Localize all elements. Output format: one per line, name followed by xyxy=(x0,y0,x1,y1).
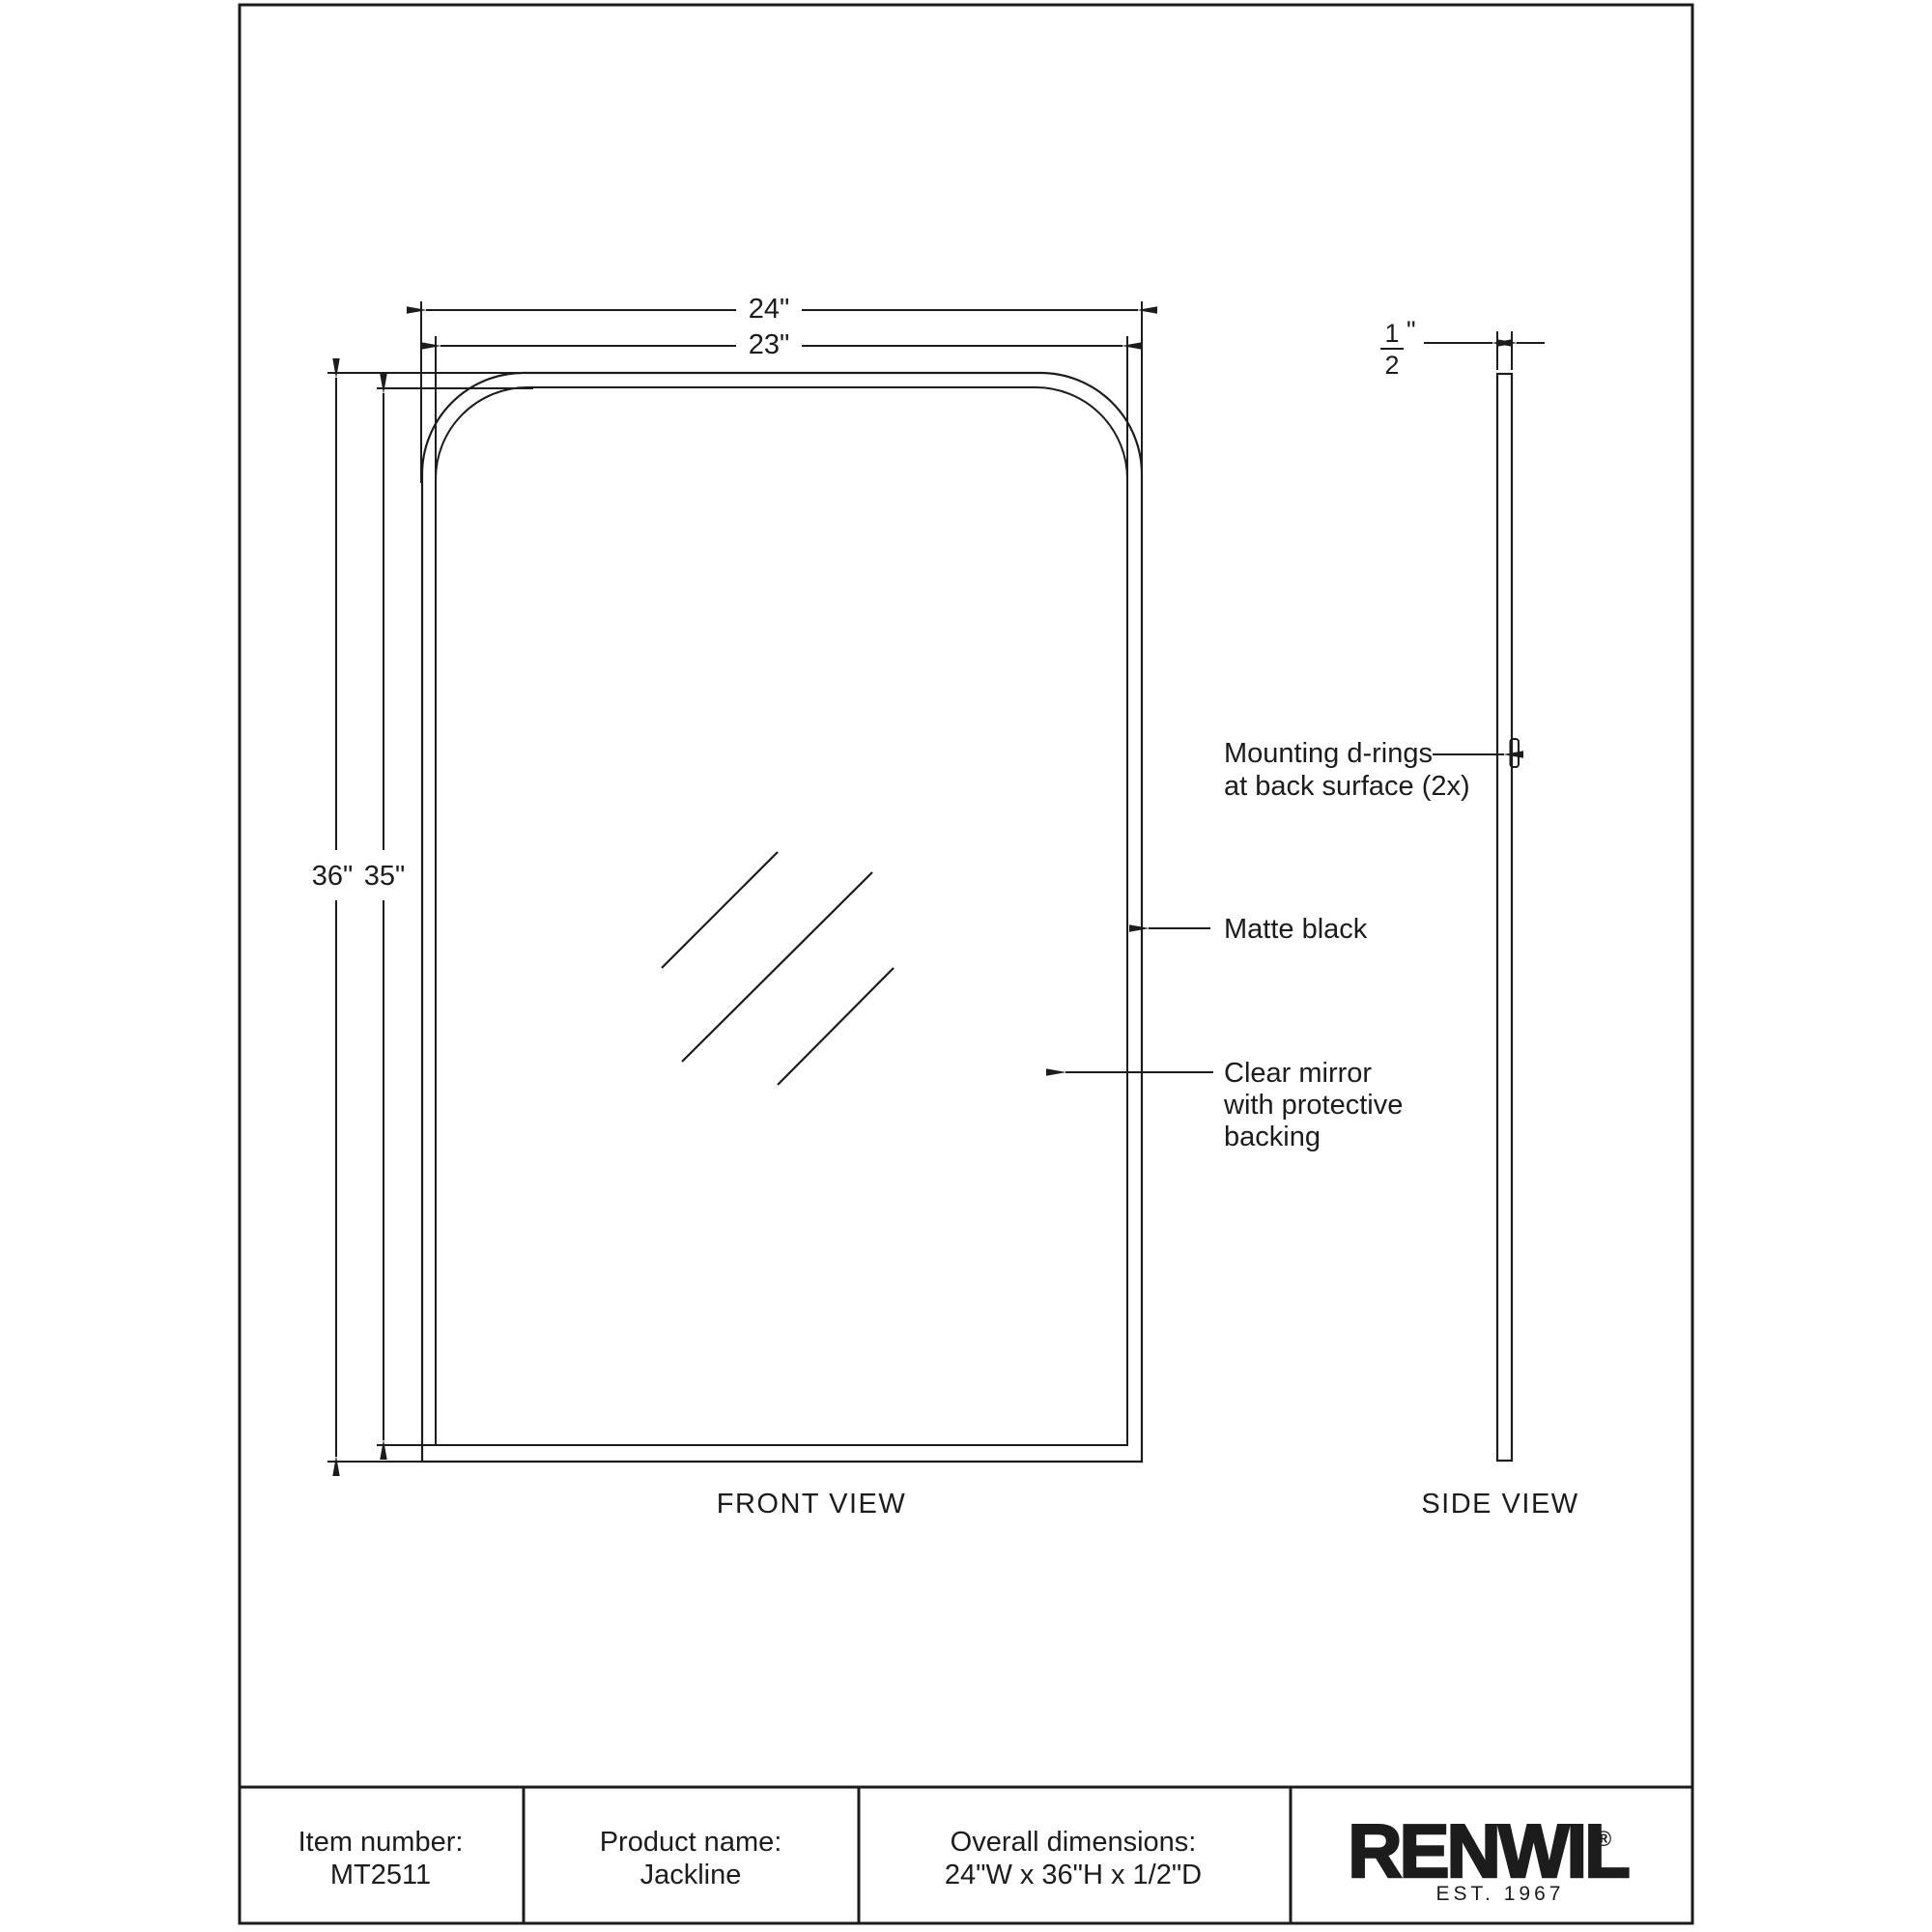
callout-clear-mirror-line1: Clear mirror xyxy=(1224,1058,1372,1089)
spec-sheet-page: 24" 23" 36" 35" xyxy=(0,0,1932,1932)
dim-width-24: 24" xyxy=(426,294,1138,325)
mirror-outer-frame xyxy=(422,373,1142,1462)
dim-height-36-label: 36" xyxy=(312,861,354,892)
title-block-dimensions: Overall dimensions: 24"W x 36"H x 1/2"D xyxy=(945,1827,1202,1890)
dimensions-label: Overall dimensions: xyxy=(951,1827,1197,1858)
product-name-value: Jackline xyxy=(640,1860,742,1890)
title-block-product-name: Product name: Jackline xyxy=(600,1827,782,1890)
side-profile xyxy=(1497,374,1512,1461)
item-number-value: MT2511 xyxy=(330,1860,431,1890)
dim-depth-numerator: 1 xyxy=(1384,319,1399,348)
product-name-label: Product name: xyxy=(600,1827,782,1858)
page-border xyxy=(240,5,1692,1923)
dim-height-36: 36" xyxy=(312,378,354,1457)
callout-clear-mirror-line2: with protective xyxy=(1223,1090,1403,1121)
callout-clear-mirror-line3: backing xyxy=(1224,1122,1321,1152)
dim-height-35-label: 35" xyxy=(364,861,406,892)
dim-depth-unit: " xyxy=(1406,316,1416,345)
callout-mounting-line1: Mounting d-rings xyxy=(1224,738,1433,769)
dim-depth-half-inch: 1 2 " xyxy=(1380,316,1545,380)
dimensions-value: 24"W x 36"H x 1/2"D xyxy=(945,1860,1202,1890)
dimension-extension-lines xyxy=(327,301,1142,1462)
callout-mounting-line2: at back surface (2x) xyxy=(1224,771,1470,802)
dim-depth-denominator: 2 xyxy=(1384,351,1399,380)
side-view-label: SIDE VIEW xyxy=(1421,1489,1578,1520)
callout-mounting: Mounting d-rings at back surface (2x) xyxy=(1224,738,1504,802)
callouts: Mounting d-rings at back surface (2x) Ma… xyxy=(1065,738,1504,1152)
callout-clear-mirror: Clear mirror with protective backing xyxy=(1065,1058,1403,1152)
registered-trademark-icon: ® xyxy=(1596,1827,1611,1851)
front-view-label: FRONT VIEW xyxy=(717,1489,907,1520)
mirror-shine-lines xyxy=(662,852,894,1085)
item-number-label: Item number: xyxy=(298,1827,464,1858)
technical-drawing: 24" 23" 36" 35" xyxy=(0,0,1932,1932)
mirror-inner-frame xyxy=(436,387,1127,1445)
dim-width-23: 23" xyxy=(440,329,1122,360)
front-view-drawing xyxy=(422,373,1142,1462)
brand-name: RENWIL xyxy=(1348,1808,1629,1893)
side-view-drawing: 1 2 " xyxy=(1380,316,1545,1461)
title-block: Item number: MT2511 Product name: Jackli… xyxy=(240,1787,1692,1923)
brand-tagline: EST. 1967 xyxy=(1436,1883,1565,1905)
brand-logo: RENWIL ® EST. 1967 xyxy=(1348,1808,1629,1905)
dim-width-24-label: 24" xyxy=(749,294,790,325)
callout-matte-black-label: Matte black xyxy=(1224,914,1368,945)
dim-width-23-label: 23" xyxy=(749,329,790,360)
dim-height-35: 35" xyxy=(364,393,406,1440)
callout-matte-black: Matte black xyxy=(1149,914,1368,945)
title-block-item-number: Item number: MT2511 xyxy=(298,1827,464,1890)
dim-depth-label: 1 2 " xyxy=(1380,316,1416,380)
